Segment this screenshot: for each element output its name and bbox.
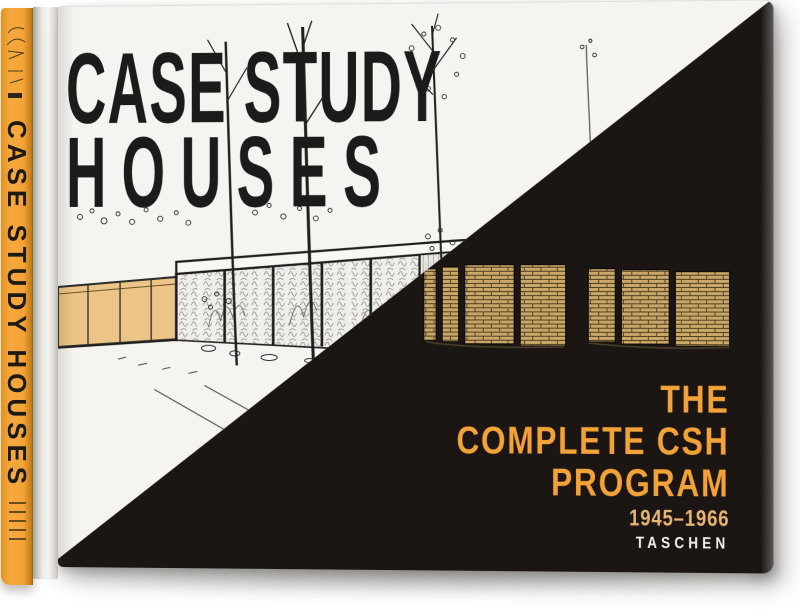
subtitle-line-1: THE bbox=[457, 379, 730, 422]
subtitle-block: THE COMPLETE CSH PROGRAM 1945–1966 TASCH… bbox=[457, 379, 730, 554]
subtitle-line-2: COMPLETE CSH bbox=[457, 421, 730, 464]
subtitle-line-3: PROGRAM bbox=[457, 462, 730, 505]
book-spine: CASE STUDY HOUSES bbox=[1, 8, 33, 585]
years-label: 1945–1966 bbox=[457, 504, 730, 532]
cover-title: CASE STUDY HOUSES bbox=[66, 44, 442, 215]
publisher-logo: TASCHEN bbox=[457, 533, 730, 554]
book-hinge bbox=[33, 7, 58, 579]
spine-sketch-drawing bbox=[4, 21, 30, 107]
spine-credits-text bbox=[9, 502, 26, 540]
title-line-2: HOUSES bbox=[66, 129, 442, 215]
book-cover-photo: CASE STUDY HOUSES bbox=[0, 0, 800, 615]
book-front-cover: CASE STUDY HOUSES THE COMPLETE CSH PROGR… bbox=[58, 0, 773, 574]
spine-title: CASE STUDY HOUSES bbox=[4, 120, 30, 489]
